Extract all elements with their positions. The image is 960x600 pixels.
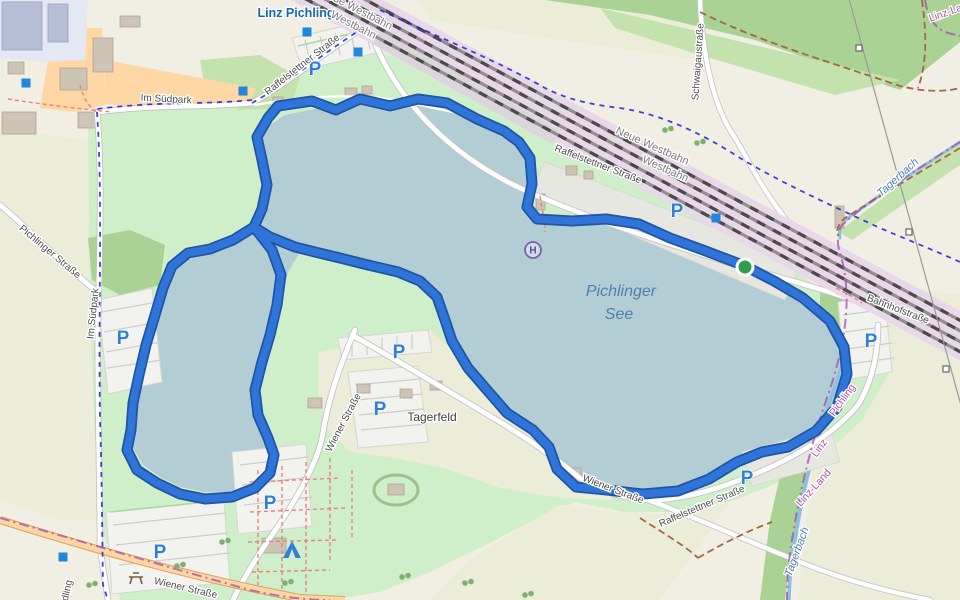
parking-icon: P bbox=[393, 342, 406, 363]
map-label: Linz Pichling bbox=[257, 6, 334, 20]
svg-text:H: H bbox=[529, 246, 536, 257]
map-label: Pichlinger bbox=[586, 283, 657, 300]
cycle-node-marker bbox=[22, 79, 31, 88]
power-pylon-icon bbox=[906, 229, 912, 235]
parking-icon: P bbox=[671, 201, 684, 222]
parking-icon: P bbox=[154, 542, 167, 563]
parking-icon: P bbox=[374, 399, 387, 420]
parking-icon: P bbox=[117, 328, 130, 349]
route-start-marker[interactable] bbox=[736, 258, 755, 277]
cycle-node-marker bbox=[303, 28, 312, 37]
map-canvas[interactable]: PPPPPPPPP H Linz PichlingNeue WestbahnWe… bbox=[0, 0, 960, 600]
map-screenshot: PPPPPPPPP H Linz PichlingNeue WestbahnWe… bbox=[0, 0, 960, 600]
cycle-node-marker bbox=[59, 553, 68, 562]
bus-stop-icon: H bbox=[525, 242, 541, 258]
parking-icon: P bbox=[865, 331, 878, 352]
map-label: See bbox=[605, 306, 634, 323]
map-label: Tagerfeld bbox=[407, 410, 456, 424]
cycle-node-marker bbox=[239, 87, 248, 96]
cycle-node-marker bbox=[712, 214, 721, 223]
power-pylon-icon bbox=[943, 366, 949, 372]
cycle-node-marker bbox=[354, 48, 363, 57]
parking-icon: P bbox=[264, 493, 277, 514]
power-pylon-icon bbox=[856, 45, 862, 51]
